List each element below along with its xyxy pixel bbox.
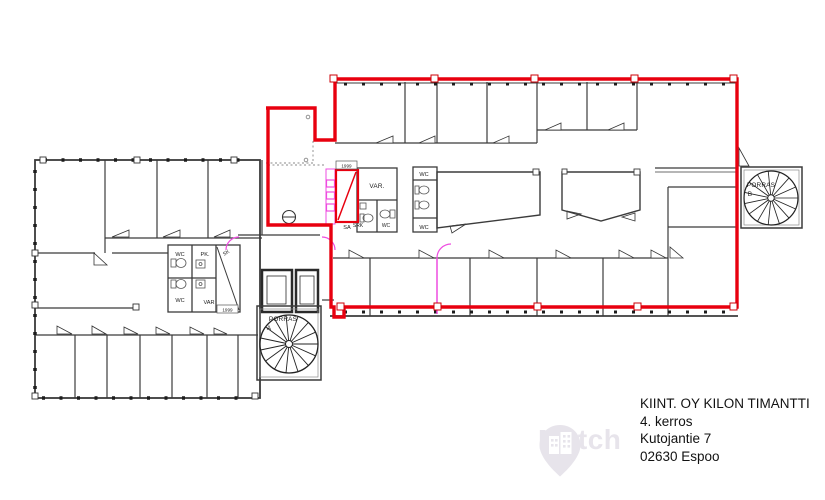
label-wc-core2-top: WC (419, 172, 428, 178)
column-symbol (282, 211, 296, 224)
label-porras-a: PORRAS (269, 316, 297, 323)
title-block: KIINT. OY KILON TIMANTTI 4. kerros Kutoj… (640, 395, 810, 465)
label-wc-left-top: WC (175, 252, 184, 258)
stair-spiral-a-icon (260, 315, 318, 373)
room-tag-1: 1999 (341, 163, 352, 168)
label-pk: PK. (200, 252, 209, 258)
title-line-city: 02630 Espoo (640, 448, 810, 466)
title-line-floor: 4. kerros (640, 413, 810, 431)
label-var-left: VAR (203, 300, 214, 306)
sa-shaft (336, 170, 358, 222)
label-var-core: VAR. (369, 183, 384, 190)
right-wing-walls (333, 82, 737, 316)
room-tag-2: 1999 (222, 307, 233, 312)
label-sk: SK (222, 248, 231, 257)
highlight-outline (266, 79, 737, 317)
title-line-street: Kutojantie 7 (640, 430, 810, 448)
title-line-building: KIINT. OY KILON TIMANTTI (640, 395, 810, 413)
label-porras-b: PORRAS (747, 182, 775, 189)
label-sa: SA (343, 225, 351, 231)
label-porras-a-letter: A (267, 325, 272, 332)
label-porras-b-letter: B (748, 191, 752, 198)
label-wc-left-bottom: WC (175, 298, 184, 304)
column-markers (32, 75, 737, 399)
floor-plan-page: Match (0, 0, 825, 500)
meeting-rooms (437, 169, 640, 228)
label-wc-core1: WC (382, 223, 391, 229)
stair-spiral-b-icon (744, 171, 798, 225)
left-wing-windows (35, 160, 254, 398)
connector-walls (238, 160, 738, 316)
label-srk: SRK (353, 223, 364, 229)
label-wc-core2-bottom: WC (419, 225, 428, 231)
